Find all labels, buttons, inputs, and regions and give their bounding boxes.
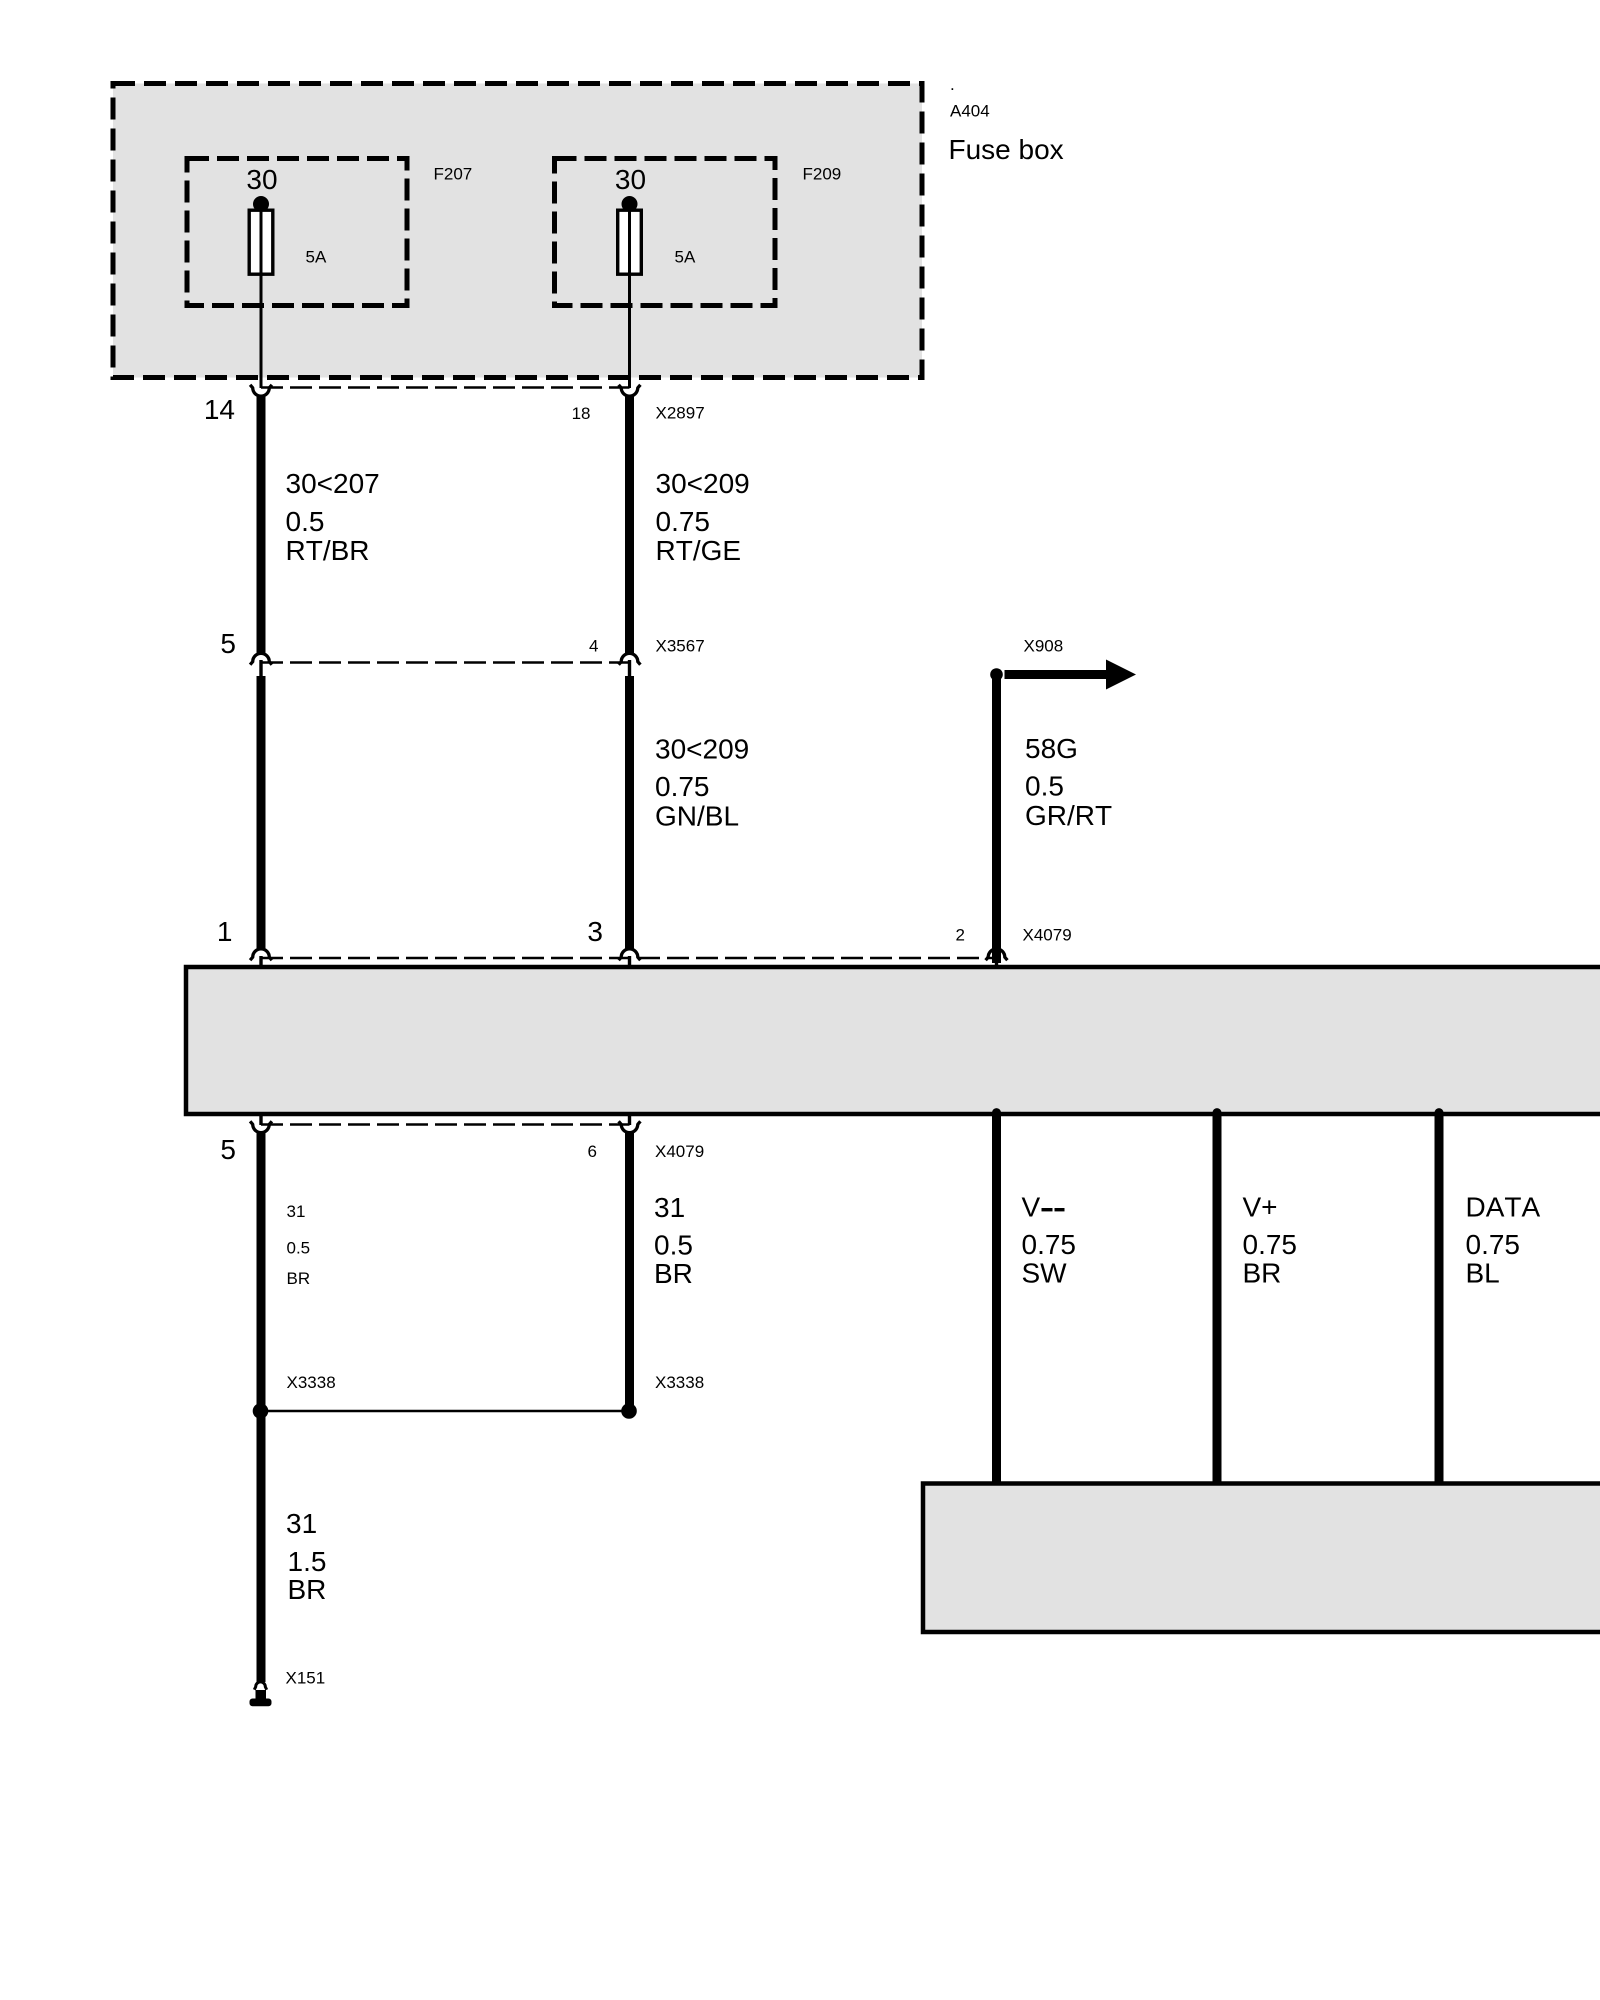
svg-text:1: 1 — [217, 916, 233, 947]
svg-text:RT/GE: RT/GE — [656, 535, 742, 566]
svg-text:0.75: 0.75 — [656, 506, 711, 537]
svg-text:V+: V+ — [1243, 1192, 1278, 1223]
svg-text:18: 18 — [572, 404, 591, 423]
svg-text:X908: X908 — [1024, 637, 1064, 656]
svg-text:5: 5 — [220, 628, 236, 659]
svg-text:SW: SW — [1022, 1258, 1068, 1289]
svg-text:0.75: 0.75 — [1022, 1229, 1077, 1260]
svg-text:1.5: 1.5 — [288, 1546, 327, 1577]
svg-text:2: 2 — [956, 926, 965, 945]
svg-text:X4079: X4079 — [655, 1142, 704, 1161]
svg-text:5A: 5A — [306, 248, 327, 267]
svg-text:30<209: 30<209 — [656, 468, 750, 499]
svg-text:30<209: 30<209 — [655, 734, 749, 765]
svg-text:X3567: X3567 — [656, 637, 705, 656]
svg-text:0.5: 0.5 — [1025, 771, 1064, 802]
svg-text:30<207: 30<207 — [286, 468, 380, 499]
svg-text:30: 30 — [246, 164, 277, 195]
svg-text:30: 30 — [615, 164, 646, 195]
svg-text:BR: BR — [287, 1269, 311, 1288]
svg-text:GN/BL: GN/BL — [655, 801, 739, 832]
svg-text:X2897: X2897 — [656, 404, 705, 423]
svg-text:3: 3 — [587, 916, 603, 947]
svg-text:X3338: X3338 — [287, 1373, 336, 1392]
svg-text:BL: BL — [1466, 1258, 1500, 1289]
svg-text:0.75: 0.75 — [655, 771, 710, 802]
svg-text:A404: A404 — [950, 102, 990, 121]
svg-text:V: V — [1022, 1192, 1041, 1223]
svg-text:4: 4 — [589, 637, 598, 656]
svg-text:6: 6 — [588, 1142, 597, 1161]
svg-text:.: . — [950, 75, 955, 94]
svg-text:GR/RT: GR/RT — [1025, 800, 1112, 831]
svg-text:0.5: 0.5 — [654, 1230, 693, 1261]
svg-text:X4079: X4079 — [1023, 926, 1072, 945]
svg-text:14: 14 — [204, 394, 235, 425]
svg-text:31: 31 — [287, 1202, 306, 1221]
svg-text:0.5: 0.5 — [287, 1239, 311, 1258]
svg-text:BR: BR — [654, 1258, 693, 1289]
svg-text:31: 31 — [286, 1508, 317, 1539]
svg-text:0.75: 0.75 — [1466, 1229, 1521, 1260]
svg-text:F207: F207 — [434, 165, 473, 184]
svg-text:BR: BR — [1243, 1258, 1282, 1289]
svg-text:DATA: DATA — [1466, 1192, 1541, 1223]
svg-text:RT/BR: RT/BR — [286, 535, 370, 566]
svg-text:5: 5 — [220, 1134, 236, 1165]
svg-text:BR: BR — [288, 1574, 327, 1605]
svg-text:0.5: 0.5 — [286, 506, 325, 537]
svg-text:X151: X151 — [286, 1669, 326, 1688]
svg-text:F209: F209 — [803, 165, 842, 184]
svg-text:Fuse box: Fuse box — [949, 134, 1064, 165]
svg-text:31: 31 — [654, 1192, 685, 1223]
svg-text:5A: 5A — [675, 248, 696, 267]
svg-text:X3338: X3338 — [655, 1373, 704, 1392]
svg-text:0.75: 0.75 — [1243, 1229, 1298, 1260]
svg-text:58G: 58G — [1025, 733, 1078, 764]
